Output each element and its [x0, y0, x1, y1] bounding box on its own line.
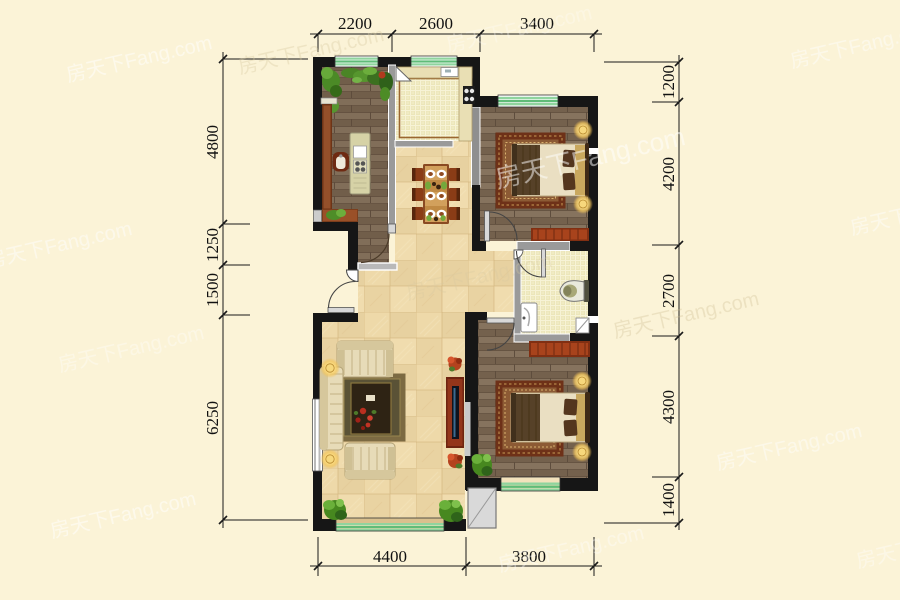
svg-text:1400: 1400	[659, 483, 678, 517]
svg-text:6250: 6250	[203, 401, 222, 435]
svg-text:4400: 4400	[373, 547, 407, 566]
svg-text:1200: 1200	[659, 65, 678, 99]
svg-text:4200: 4200	[659, 157, 678, 191]
svg-text:1250: 1250	[203, 228, 222, 262]
svg-text:1500: 1500	[203, 273, 222, 307]
svg-text:4300: 4300	[659, 390, 678, 424]
svg-text:2700: 2700	[659, 274, 678, 308]
svg-text:4800: 4800	[203, 125, 222, 159]
svg-text:2600: 2600	[419, 14, 453, 33]
